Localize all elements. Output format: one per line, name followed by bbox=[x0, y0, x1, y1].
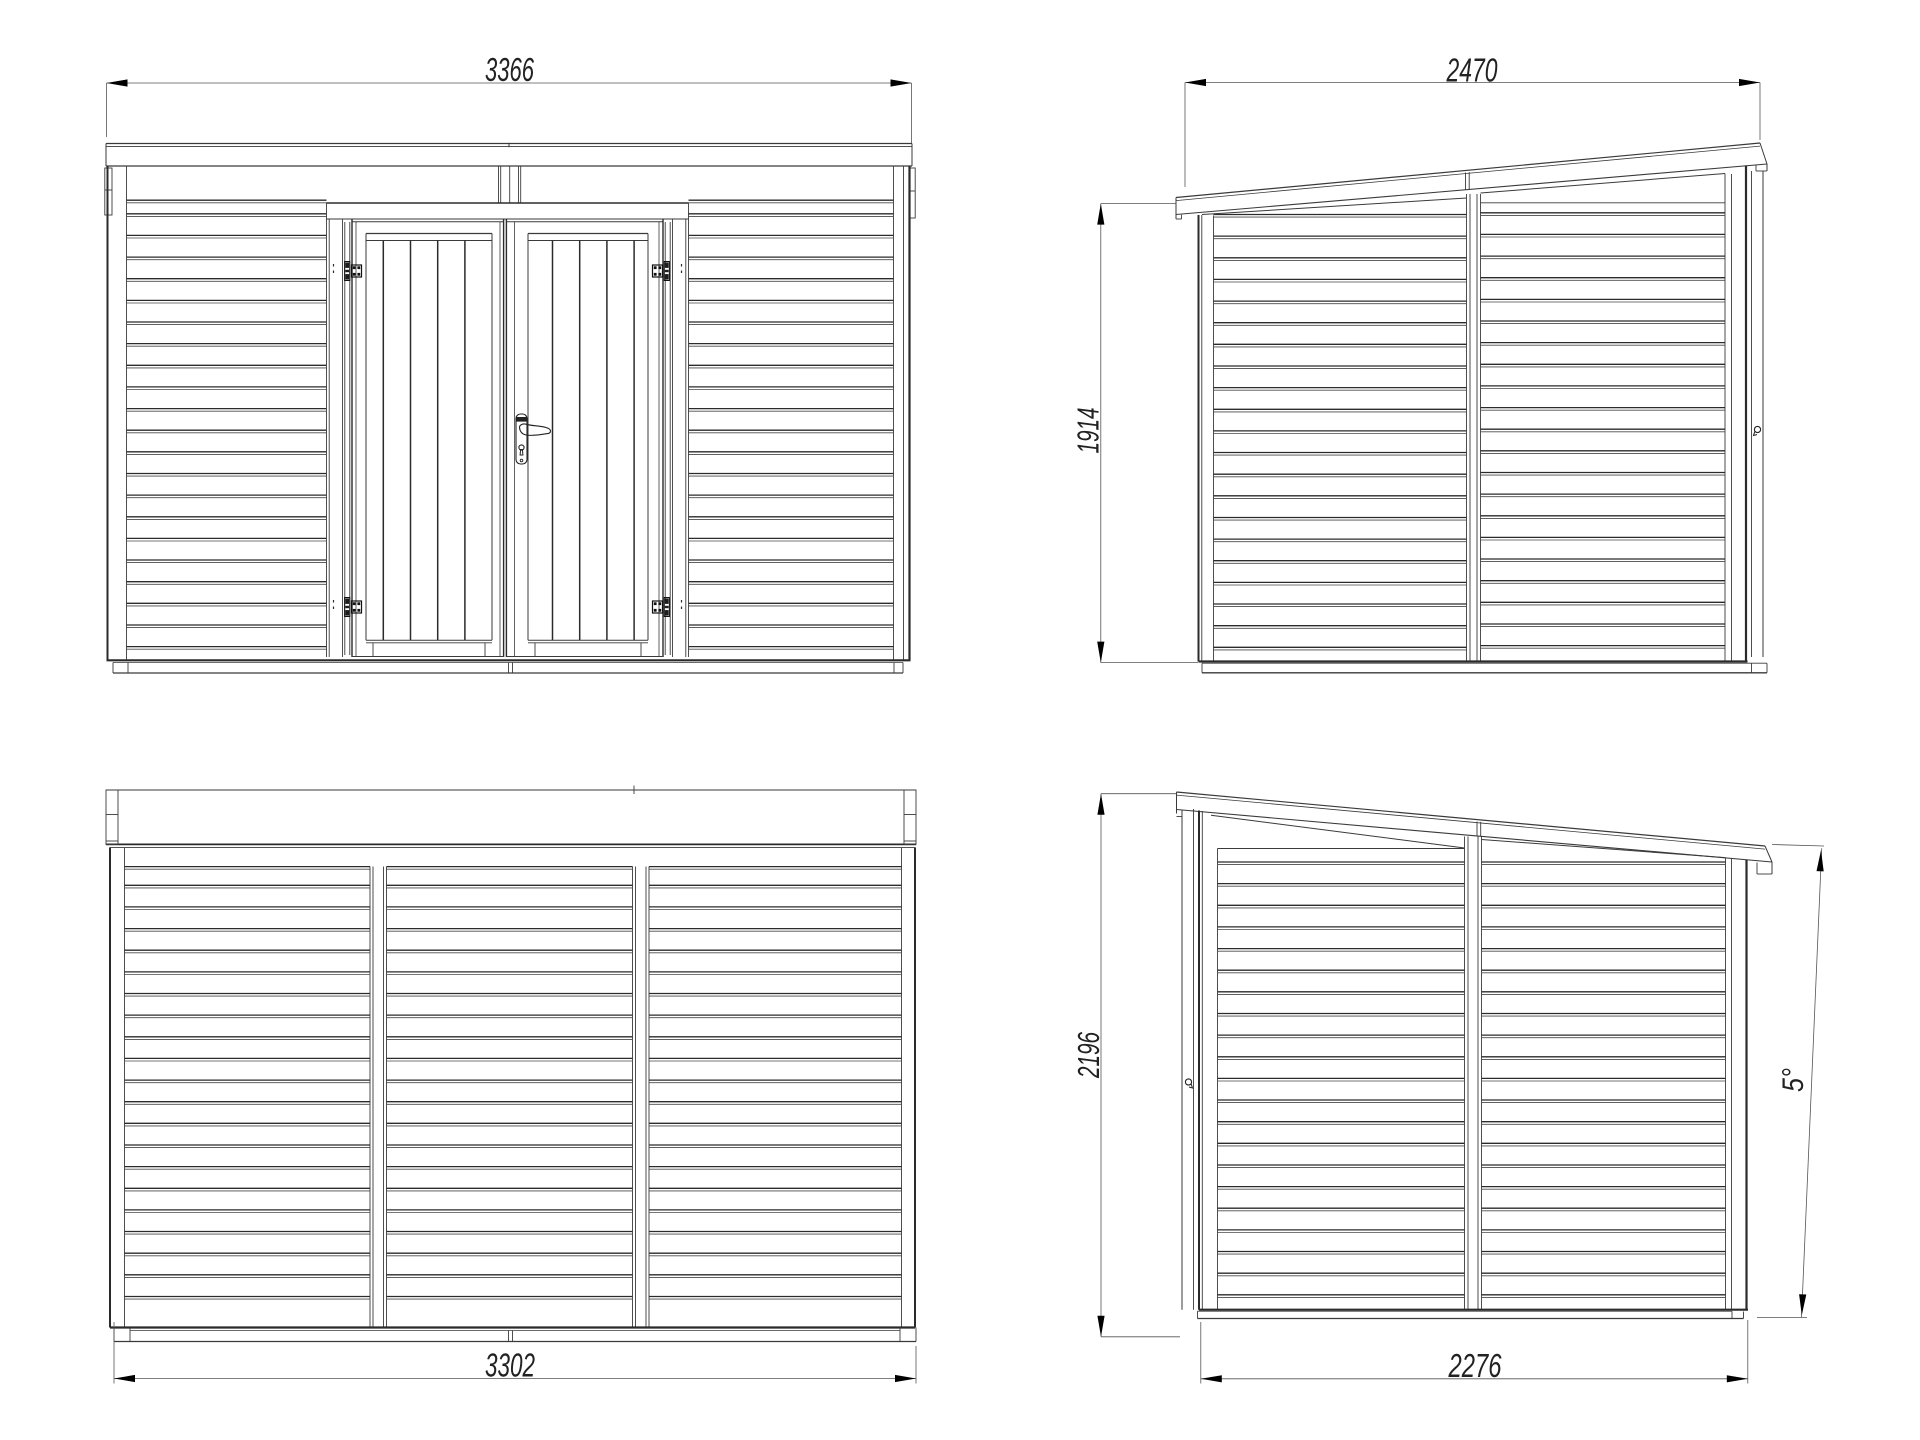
svg-text:5°: 5° bbox=[1777, 1068, 1810, 1092]
svg-text:3302: 3302 bbox=[485, 1347, 535, 1384]
svg-text:2276: 2276 bbox=[1448, 1347, 1502, 1384]
svg-text:3366: 3366 bbox=[485, 51, 534, 88]
svg-text:1914: 1914 bbox=[1071, 408, 1106, 454]
svg-text:2196: 2196 bbox=[1071, 1031, 1106, 1078]
svg-text:2470: 2470 bbox=[1446, 52, 1498, 89]
